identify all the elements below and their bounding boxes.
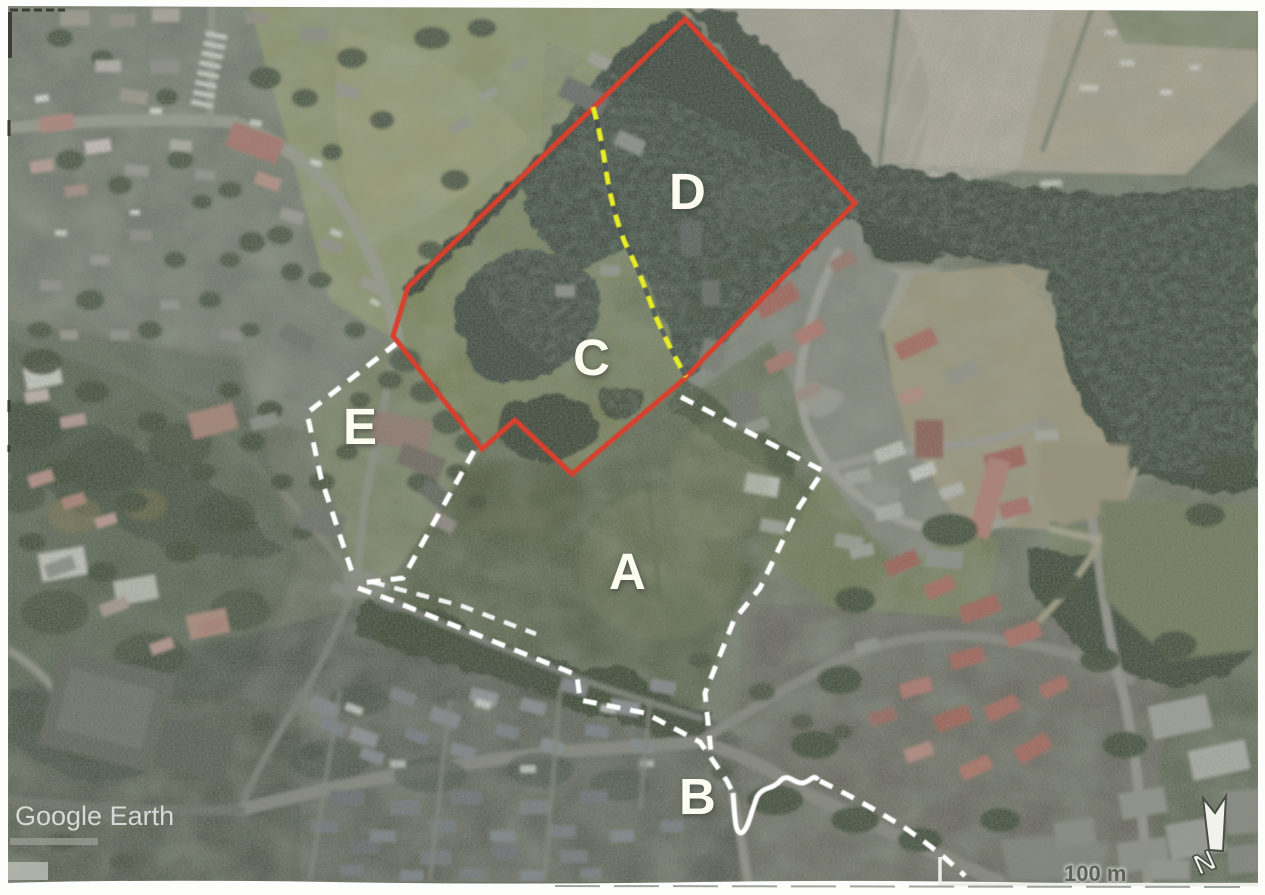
svg-text:A: A xyxy=(609,543,646,600)
svg-text:Google Earth: Google Earth xyxy=(15,801,174,831)
svg-text:D: D xyxy=(669,163,706,220)
svg-text:C: C xyxy=(573,329,610,386)
svg-text:B: B xyxy=(679,768,716,825)
svg-text:100 m: 100 m xyxy=(1064,861,1126,886)
svg-text:E: E xyxy=(343,398,377,455)
